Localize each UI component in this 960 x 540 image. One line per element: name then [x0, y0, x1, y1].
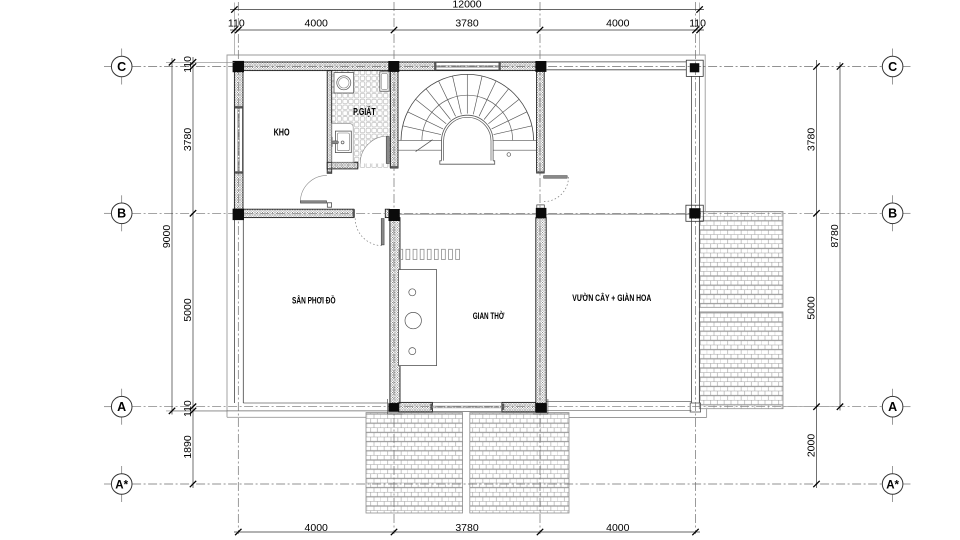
- svg-text:5000: 5000: [182, 298, 194, 322]
- svg-text:A*: A*: [115, 479, 128, 491]
- svg-text:4000: 4000: [305, 17, 329, 29]
- svg-text:1890: 1890: [182, 435, 194, 459]
- svg-text:GIAN THỜ: GIAN THỜ: [473, 310, 505, 322]
- svg-text:3780: 3780: [455, 17, 479, 29]
- svg-text:4000: 4000: [606, 17, 630, 29]
- svg-text:110: 110: [228, 17, 245, 29]
- svg-text:C: C: [888, 60, 897, 74]
- svg-text:3780: 3780: [182, 128, 194, 152]
- svg-text:C: C: [117, 60, 126, 74]
- svg-text:110: 110: [182, 400, 194, 417]
- svg-text:B: B: [888, 207, 897, 221]
- svg-text:4000: 4000: [305, 522, 329, 534]
- svg-text:KHO: KHO: [274, 128, 290, 139]
- svg-text:B: B: [117, 207, 126, 221]
- svg-text:3780: 3780: [805, 128, 817, 152]
- svg-text:2000: 2000: [805, 434, 817, 458]
- svg-text:12000: 12000: [452, 0, 481, 11]
- svg-text:110: 110: [689, 17, 706, 29]
- svg-text:5000: 5000: [805, 296, 817, 320]
- svg-text:3780: 3780: [455, 522, 479, 534]
- svg-text:A: A: [117, 400, 126, 414]
- svg-text:A: A: [888, 400, 897, 414]
- svg-text:9000: 9000: [161, 225, 173, 249]
- svg-text:VƯỜN CÂY + GIÀN HOA: VƯỜN CÂY + GIÀN HOA: [572, 292, 651, 304]
- svg-text:110: 110: [182, 56, 194, 73]
- svg-text:P.GIẶT: P.GIẶT: [353, 105, 376, 118]
- svg-text:4000: 4000: [606, 522, 630, 534]
- svg-text:8780: 8780: [829, 224, 841, 248]
- svg-text:A*: A*: [886, 479, 899, 491]
- svg-text:SÂN PHƠI ĐỒ: SÂN PHƠI ĐỒ: [292, 294, 336, 306]
